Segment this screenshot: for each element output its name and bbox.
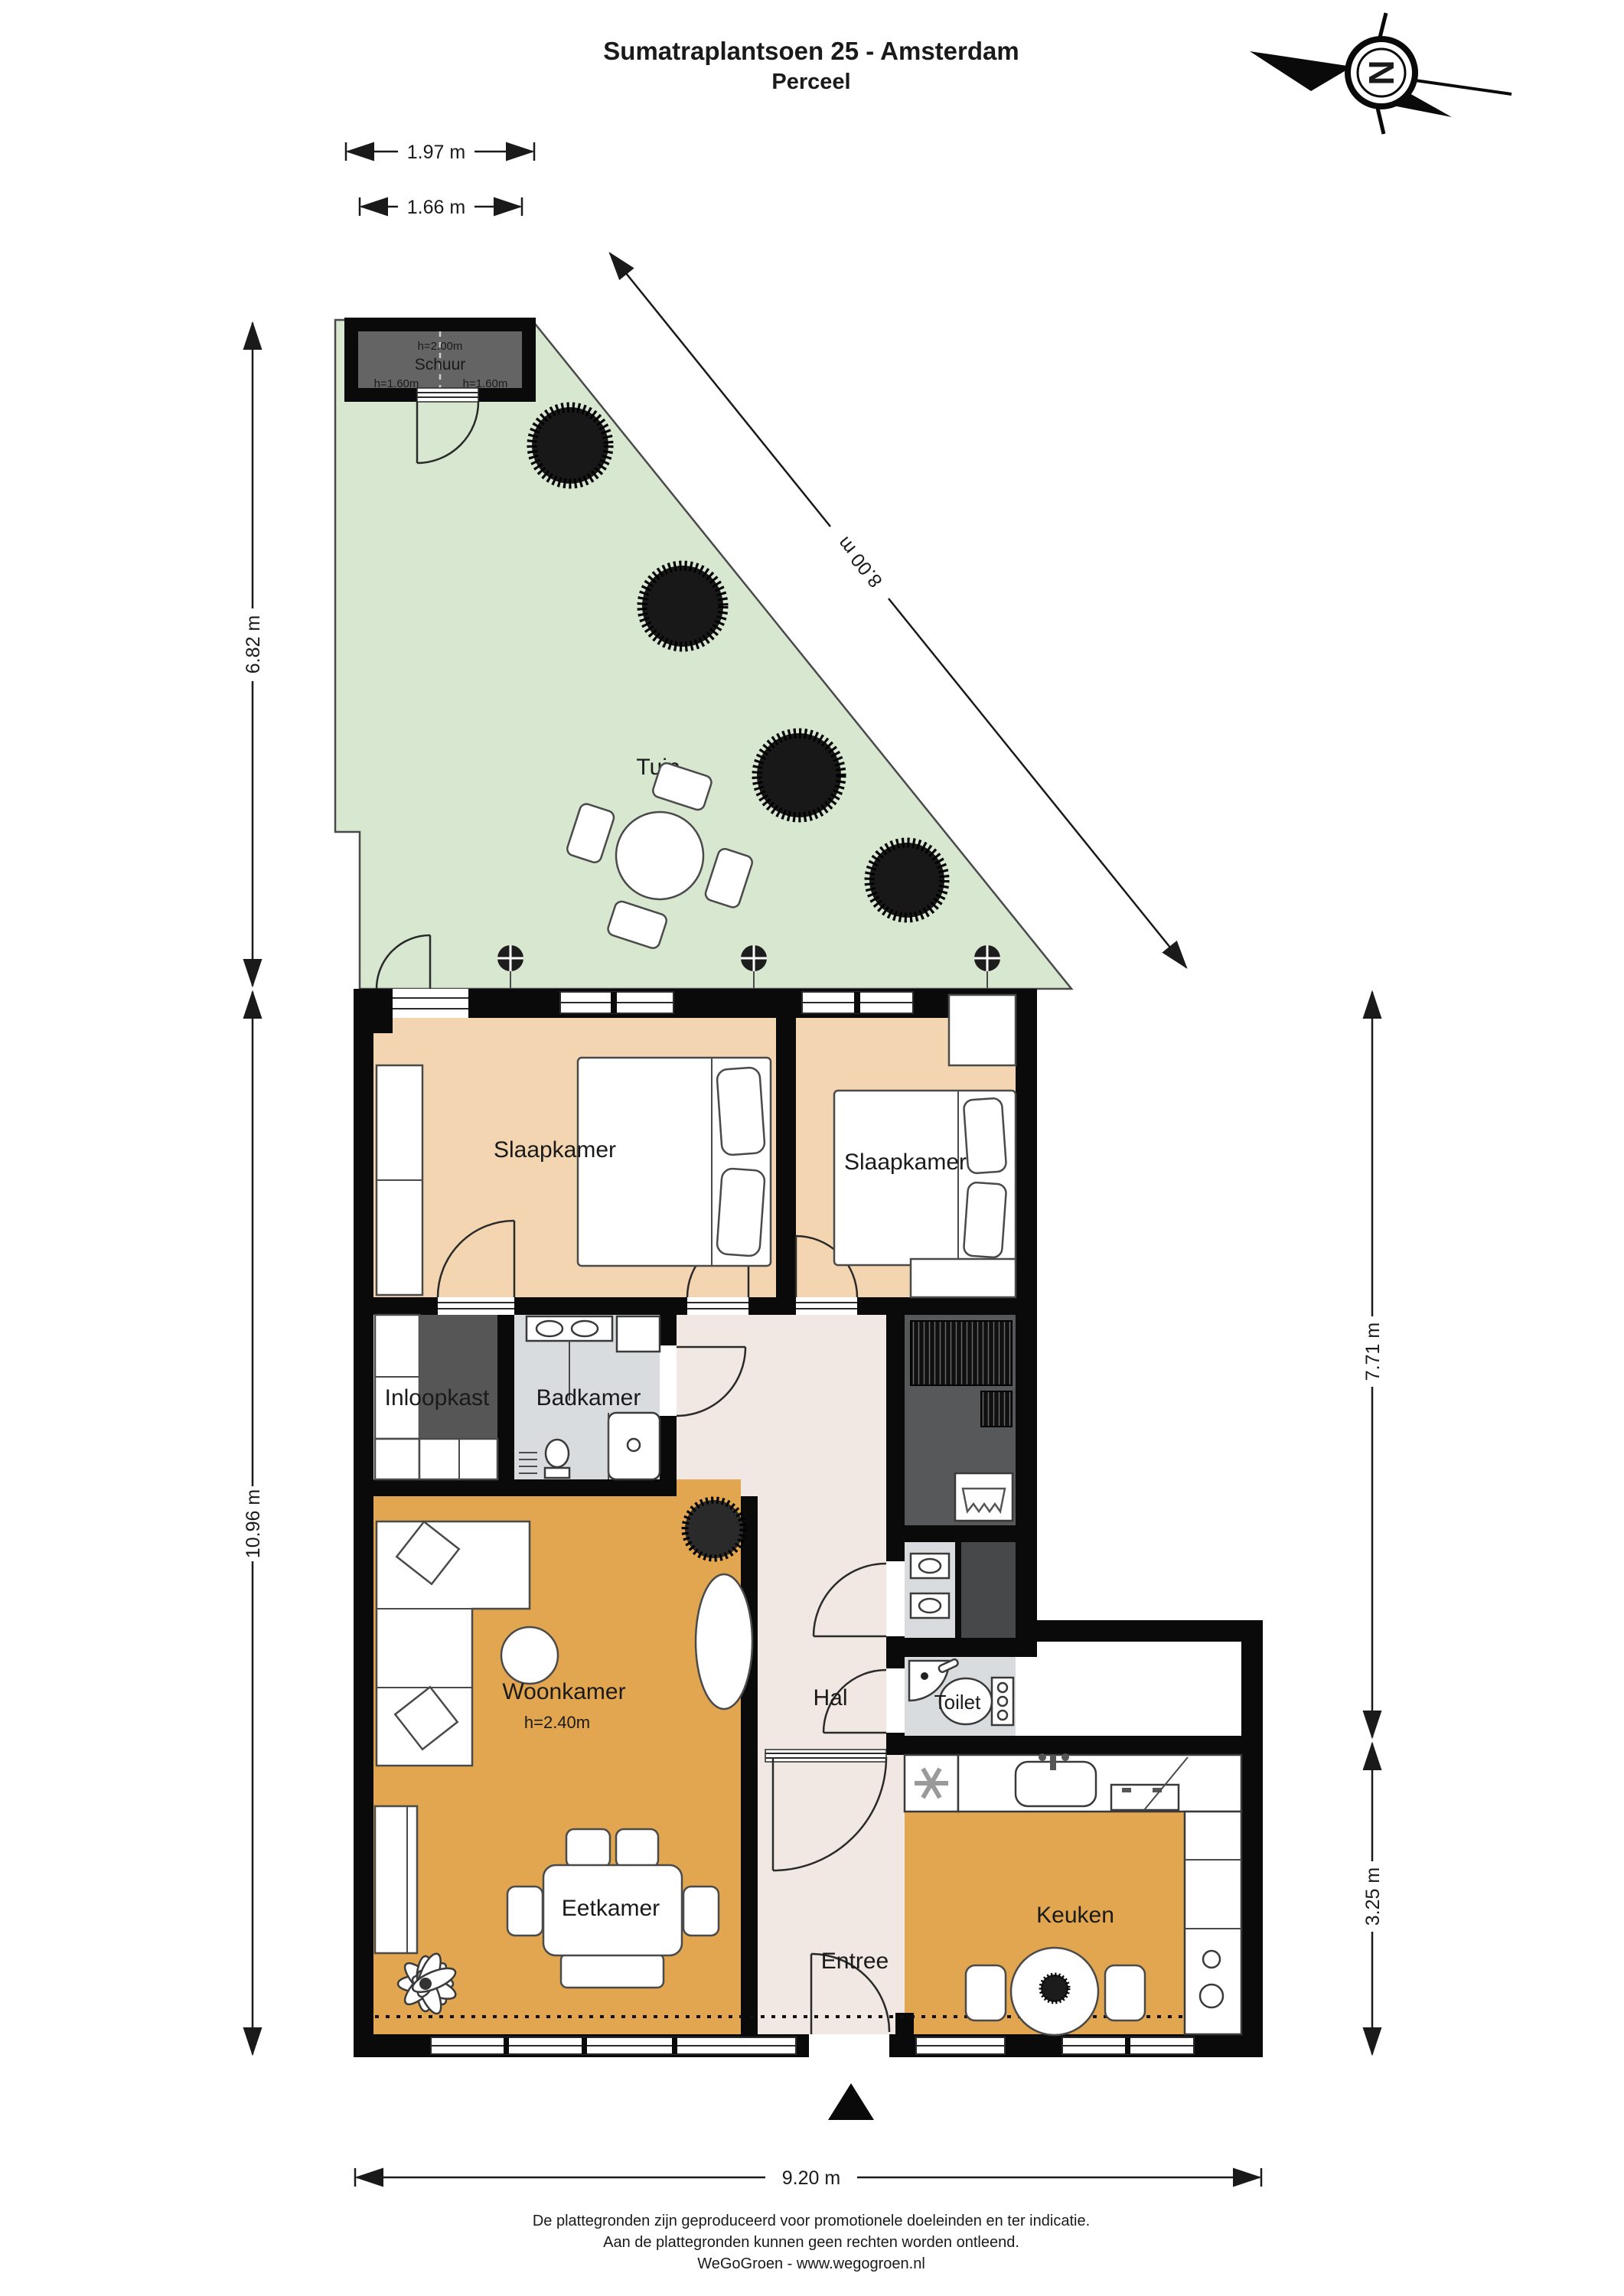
footer-line2: Aan de plattegronden kunnen geen rechten… bbox=[603, 2234, 1019, 2251]
bedroom2-label: Slaapkamer bbox=[844, 1150, 967, 1175]
dim-label: 7.71 m bbox=[1362, 1322, 1384, 1381]
garden: Tuin bbox=[335, 320, 1071, 989]
shed-label: Schuur bbox=[415, 356, 466, 373]
floorplan-svg: Sumatraplantsoen 25 - Amsterdam Perceel … bbox=[0, 0, 1624, 2296]
sideboard bbox=[696, 1574, 752, 1709]
shed-door bbox=[417, 388, 478, 402]
wall-toilet-bottom bbox=[905, 1736, 1263, 1755]
tree-icon bbox=[532, 407, 608, 484]
table-flower-icon bbox=[1041, 1975, 1068, 2002]
entree-label: Entree bbox=[821, 1949, 889, 1974]
glass-door bbox=[765, 1750, 886, 1762]
title-line2: Perceel bbox=[771, 70, 850, 94]
wall-bedroom-divider bbox=[776, 989, 796, 1315]
tree-icon bbox=[642, 566, 723, 647]
dim-garden-left: 6.82 m bbox=[243, 323, 264, 986]
dryer-icon bbox=[981, 1391, 1012, 1427]
wall-living-right bbox=[741, 1496, 758, 2057]
bathroom-cabinet bbox=[617, 1316, 660, 1352]
compass-north-letter: N bbox=[1361, 60, 1401, 85]
entrance-arrow-icon bbox=[828, 2083, 874, 2120]
dim-house-bottom: 9.20 m bbox=[355, 2167, 1261, 2189]
tree-icon bbox=[869, 843, 944, 918]
garden-area bbox=[335, 320, 1071, 989]
dim-label: 6.82 m bbox=[243, 615, 264, 673]
dim-top-inner: 1.66 m bbox=[360, 197, 522, 218]
wall-corner-pier bbox=[354, 989, 393, 1033]
diningroom-label: Eetkamer bbox=[562, 1896, 660, 1921]
bedroom1-label: Slaapkamer bbox=[494, 1137, 616, 1163]
dim-house-left: 10.96 m bbox=[243, 992, 264, 2054]
double-bed bbox=[834, 1091, 1016, 1265]
footer-line3: WeGoGroen - www.wegogroen.nl bbox=[697, 2255, 925, 2272]
wall-right-upper bbox=[1016, 989, 1037, 1642]
dim-house-right-upper: 7.71 m bbox=[1362, 992, 1384, 1737]
laundry-basket-icon bbox=[955, 1473, 1013, 1521]
wardrobe-dark bbox=[419, 1315, 497, 1439]
livingroom-height-label: h=2.40m bbox=[524, 1713, 590, 1732]
wall-kitchen-top bbox=[1016, 1620, 1263, 1642]
bookcase bbox=[375, 1806, 417, 1953]
living-passage bbox=[677, 1479, 741, 1496]
closet-label: Inloopkast bbox=[385, 1385, 490, 1411]
shed-height-top: h=2.00m bbox=[418, 340, 463, 353]
dim-house-right-lower: 3.25 m bbox=[1362, 1743, 1384, 2054]
dresser bbox=[911, 1259, 1016, 1297]
window bbox=[1062, 2037, 1194, 2054]
dark-cell-floor bbox=[961, 1542, 1016, 1638]
toilet-icon bbox=[545, 1440, 569, 1478]
footer: De plattegronden zijn geproduceerd voor … bbox=[533, 2213, 1090, 2272]
dim-label: 1.66 m bbox=[407, 197, 465, 218]
wall-right-lower bbox=[1241, 1620, 1263, 2057]
wall-toilet-top bbox=[886, 1638, 1037, 1657]
tree-icon bbox=[757, 733, 841, 817]
wall-entree-stub bbox=[895, 2013, 914, 2057]
dim-top-outer: 1.97 m bbox=[346, 142, 534, 163]
freezer bbox=[905, 1755, 958, 1812]
bathroom-label: Badkamer bbox=[536, 1385, 641, 1411]
wall-left bbox=[354, 989, 373, 2057]
dim-label: 8.00 m bbox=[833, 533, 887, 592]
dim-label: 1.97 m bbox=[407, 142, 465, 163]
toilet-label: Toilet bbox=[934, 1691, 981, 1714]
livingroom-label: Woonkamer bbox=[502, 1679, 625, 1704]
dim-label: 9.20 m bbox=[782, 2167, 840, 2189]
desk bbox=[949, 995, 1016, 1065]
plant-icon bbox=[685, 1500, 743, 1558]
kitchen-tall-cabinets bbox=[1185, 1812, 1241, 2034]
kitchen-label: Keuken bbox=[1036, 1903, 1114, 1928]
wall-washcell-top bbox=[905, 1525, 1016, 1542]
dim-label: 3.25 m bbox=[1362, 1867, 1384, 1926]
wall-closet-right bbox=[497, 1297, 514, 1496]
compass-icon: N bbox=[1250, 13, 1511, 134]
sink bbox=[1016, 1753, 1096, 1806]
hall-label: Hal bbox=[813, 1685, 847, 1711]
kitchen-counter bbox=[958, 1755, 1241, 1812]
window bbox=[916, 2037, 1005, 2054]
coffee-table bbox=[501, 1627, 558, 1684]
window bbox=[560, 992, 673, 1013]
window bbox=[802, 992, 913, 1013]
dim-label: 10.96 m bbox=[243, 1489, 264, 1558]
hob bbox=[1111, 1785, 1179, 1810]
window bbox=[431, 2037, 796, 2054]
footer-line1: De plattegronden zijn geproduceerd voor … bbox=[533, 2213, 1090, 2229]
wall-bathroom-bottom bbox=[354, 1479, 677, 1496]
floorplan-page: Sumatraplantsoen 25 - Amsterdam Perceel … bbox=[0, 0, 1624, 2296]
washer-icon bbox=[911, 1321, 1012, 1385]
page-title: Sumatraplantsoen 25 - Amsterdam Perceel bbox=[603, 37, 1019, 94]
shed-height-left: h=1.60m bbox=[374, 377, 419, 390]
wall-washcell-divider bbox=[955, 1542, 961, 1638]
title-line1: Sumatraplantsoen 25 - Amsterdam bbox=[603, 37, 1019, 65]
